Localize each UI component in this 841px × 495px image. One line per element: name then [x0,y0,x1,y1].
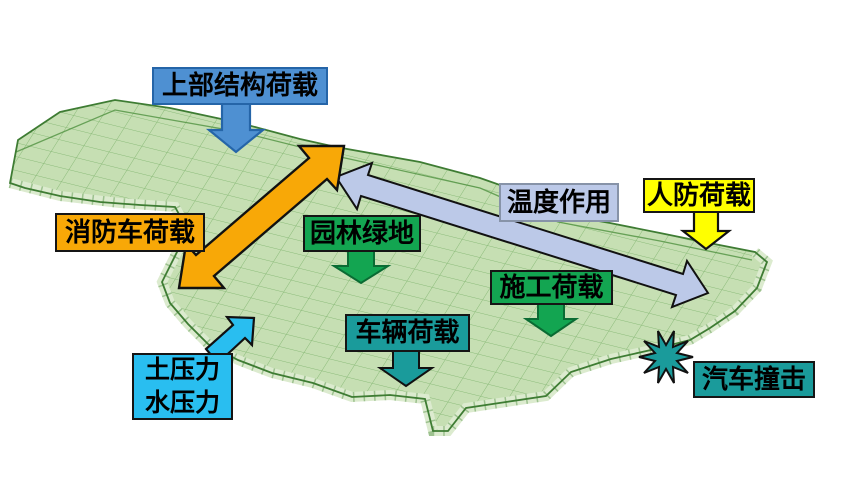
label-garden-green-space: 园林绿地 [303,215,421,252]
label-text: 施工荷载 [499,275,603,301]
label-text-earth-pressure: 土压力 [145,354,220,387]
label-text: 车辆荷载 [355,320,459,346]
label-upper-structure-load: 上部结构荷载 [152,67,328,105]
label-earth-water-pressure: 土压力 水压力 [132,353,233,420]
label-text: 人防荷载 [647,183,751,209]
label-temperature-action: 温度作用 [499,183,619,222]
label-construction-load: 施工荷载 [490,270,613,305]
load-diagram: 上部结构荷载 消防车荷载 园林绿地 温度作用 人防荷载 施工荷载 车辆荷载 土压… [0,0,841,495]
label-text: 温度作用 [507,190,611,216]
label-civil-defense-load: 人防荷载 [643,178,755,213]
label-car-impact: 汽车撞击 [693,361,815,398]
label-vehicle-load: 车辆荷载 [345,314,470,352]
label-text: 消防车荷载 [65,220,195,246]
label-text: 汽车撞击 [702,367,806,393]
label-text: 园林绿地 [310,221,414,247]
label-text-water-pressure: 水压力 [145,387,220,420]
label-fire-truck-load: 消防车荷载 [55,213,205,252]
label-text: 上部结构荷载 [162,73,318,99]
